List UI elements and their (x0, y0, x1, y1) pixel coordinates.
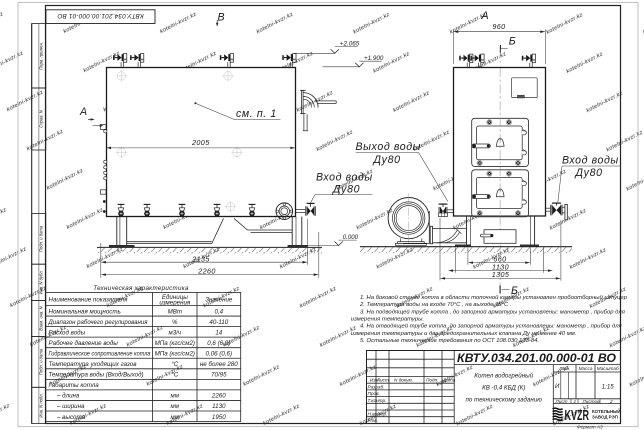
svg-text:Н.контр.: Н.контр. (368, 411, 388, 416)
svg-text:МПа (кгс/см2): МПа (кгс/см2) (155, 340, 195, 347)
svg-text:мм: мм (171, 403, 180, 410)
svg-text:0,06 (0,6): 0,06 (0,6) (206, 351, 232, 358)
svg-text:МВт: МВт (168, 308, 182, 315)
svg-text:°С: °С (171, 361, 178, 368)
svg-text:Подп.: Подп. (426, 378, 438, 383)
svg-text:40-110: 40-110 (209, 319, 228, 326)
svg-text:Наименование показателя: Наименование показателя (49, 297, 129, 304)
svg-text:Масса: Масса (579, 366, 593, 371)
svg-text:Вход воды: Вход воды (562, 154, 619, 166)
svg-text:КВ -0,4 КБД (К): КВ -0,4 КБД (К) (482, 385, 525, 392)
svg-text:Лит.: Лит. (558, 366, 570, 371)
svg-text:Температура уходящих газов: Температура уходящих газов (49, 361, 138, 368)
svg-text:по техническому заданию: по техническому заданию (465, 397, 542, 404)
svg-text:2260: 2260 (197, 267, 216, 276)
svg-text:А: А (481, 10, 490, 22)
svg-text:Температура воды (Вход/Выход): Температура воды (Вход/Выход) (49, 372, 144, 379)
svg-text:Подп. и дата: Подп. и дата (39, 225, 44, 252)
svg-text:КВТУ.034.201.00.000-01 ВО: КВТУ.034.201.00.000-01 ВО (457, 351, 617, 365)
svg-text:Вход воды: Вход воды (316, 172, 373, 184)
svg-text:2: 2 (609, 399, 613, 404)
svg-text:Рабочее давление воды: Рабочее давление воды (49, 340, 119, 347)
svg-text:Перв. примен.: Перв. примен. (39, 42, 44, 70)
svg-text:°С: °С (171, 372, 178, 379)
svg-text:измерения: измерения (159, 300, 191, 307)
svg-text:Расход воды: Расход воды (49, 329, 86, 336)
svg-text:Габариты котла: Габариты котла (49, 382, 100, 389)
svg-text:Лист: Лист (555, 399, 568, 404)
svg-text:– высота: – высота (56, 414, 86, 421)
svg-text:А: А (79, 106, 88, 118)
svg-text:0,6 (6,0): 0,6 (6,0) (207, 340, 230, 347)
svg-text:Пров.: Пров. (368, 391, 380, 396)
svg-text:5. Остальные технические треб: 5. Остальные технические требования по О… (360, 338, 539, 344)
svg-text:Инв. N подл.: Инв. N подл. (39, 393, 44, 417)
svg-text:3. На подводящей трубе котла: 3. На подводящей трубе котла , до запорн… (360, 308, 626, 315)
svg-text:Листов: Листов (582, 399, 601, 404)
svg-text:Ду80: Ду80 (575, 167, 603, 179)
svg-text:Котел водогрейный: Котел водогрейный (474, 373, 533, 380)
svg-text:Б: Б (509, 36, 517, 48)
svg-text:1: 1 (574, 399, 577, 404)
svg-text:Гидравлическое сопротивление к: Гидравлическое сопротивление котла (49, 351, 151, 358)
svg-text:Дата: Дата (442, 378, 456, 383)
svg-text:Т.контр.: Т.контр. (368, 398, 387, 403)
svg-text:1305: 1305 (492, 270, 510, 279)
svg-text:4. На отводящей трубе котла ,: 4. На отводящей трубе котла ,до запорной… (360, 323, 623, 330)
svg-text:Подп. и дата: Подп. и дата (39, 348, 44, 375)
svg-text:Значение: Значение (205, 297, 233, 304)
svg-text:Формат А3: Формат А3 (577, 424, 603, 429)
svg-text:Лист: Лист (376, 378, 389, 383)
svg-text:измерения температуры.: измерения температуры. (351, 317, 424, 323)
svg-text:N докум.: N докум. (394, 378, 413, 383)
svg-text:Разраб.: Разраб. (368, 385, 385, 390)
svg-text:Ду80: Ду80 (373, 154, 401, 166)
svg-text:И: И (555, 383, 560, 390)
svg-text:0.000: 0.000 (343, 234, 359, 241)
svg-text:+1.900: +1.900 (364, 55, 384, 62)
svg-text:Номинальная мощность: Номинальная мощность (49, 308, 121, 315)
svg-text:Выход воды: Выход воды (356, 141, 422, 153)
svg-text:Инв. N дубл.: Инв. N дубл. (39, 270, 44, 294)
svg-text:Утв.: Утв. (368, 418, 379, 423)
svg-text:14: 14 (215, 329, 222, 336)
svg-text:70/95: 70/95 (211, 372, 227, 379)
svg-text:%: % (172, 319, 178, 326)
svg-text:2260: 2260 (211, 393, 226, 400)
svg-text:2135: 2135 (191, 254, 210, 263)
svg-text:2. Температура воды на входе: 2. Температура воды на входе 70°С , на в… (359, 302, 512, 308)
svg-text:1130: 1130 (212, 403, 226, 410)
svg-text:960: 960 (492, 22, 505, 31)
svg-text:1. На боковой стенке котла в: 1. На боковой стенке котла в области топ… (360, 294, 628, 301)
svg-text:мм: мм (171, 393, 180, 400)
svg-text:Справ. N: Справ. N (39, 109, 44, 127)
svg-text:ЗАВОД РЭП: ЗАВОД РЭП (592, 414, 618, 419)
svg-text:В: В (218, 12, 226, 24)
svg-text:КВТУ.034.201.00.000-01 ВО: КВТУ.034.201.00.000-01 ВО (57, 12, 143, 19)
svg-text:– ширина: – ширина (56, 403, 85, 410)
svg-text:мм: мм (171, 414, 180, 421)
svg-text:1:15: 1:15 (602, 384, 615, 391)
svg-text:0,4: 0,4 (214, 308, 223, 315)
svg-text:измерения температуры и два пр: измерения температуры и два предохраните… (351, 331, 577, 337)
svg-text:+2.065: +2.065 (340, 40, 360, 47)
svg-text:не более 280: не более 280 (200, 361, 238, 368)
svg-text:Ду80: Ду80 (332, 184, 360, 196)
svg-text:KVZR: KVZR (565, 407, 590, 424)
svg-text:Диапазон рабочего регулировани: Диапазон рабочего регулирования (48, 319, 149, 326)
svg-text:м3/ч: м3/ч (168, 329, 181, 336)
svg-text:МПа (кгс/см2): МПа (кгс/см2) (155, 351, 195, 358)
svg-text:2005: 2005 (191, 138, 210, 147)
svg-text:Взам. инв. N: Взам. инв. N (39, 305, 44, 330)
svg-text:см. п. 1: см. п. 1 (236, 108, 277, 120)
svg-text:1950: 1950 (212, 414, 226, 421)
svg-text:Масштаб: Масштаб (597, 366, 619, 371)
svg-text:– длина: – длина (56, 393, 80, 400)
svg-text:Техническая характеристика: Техническая характеристика (93, 285, 189, 292)
